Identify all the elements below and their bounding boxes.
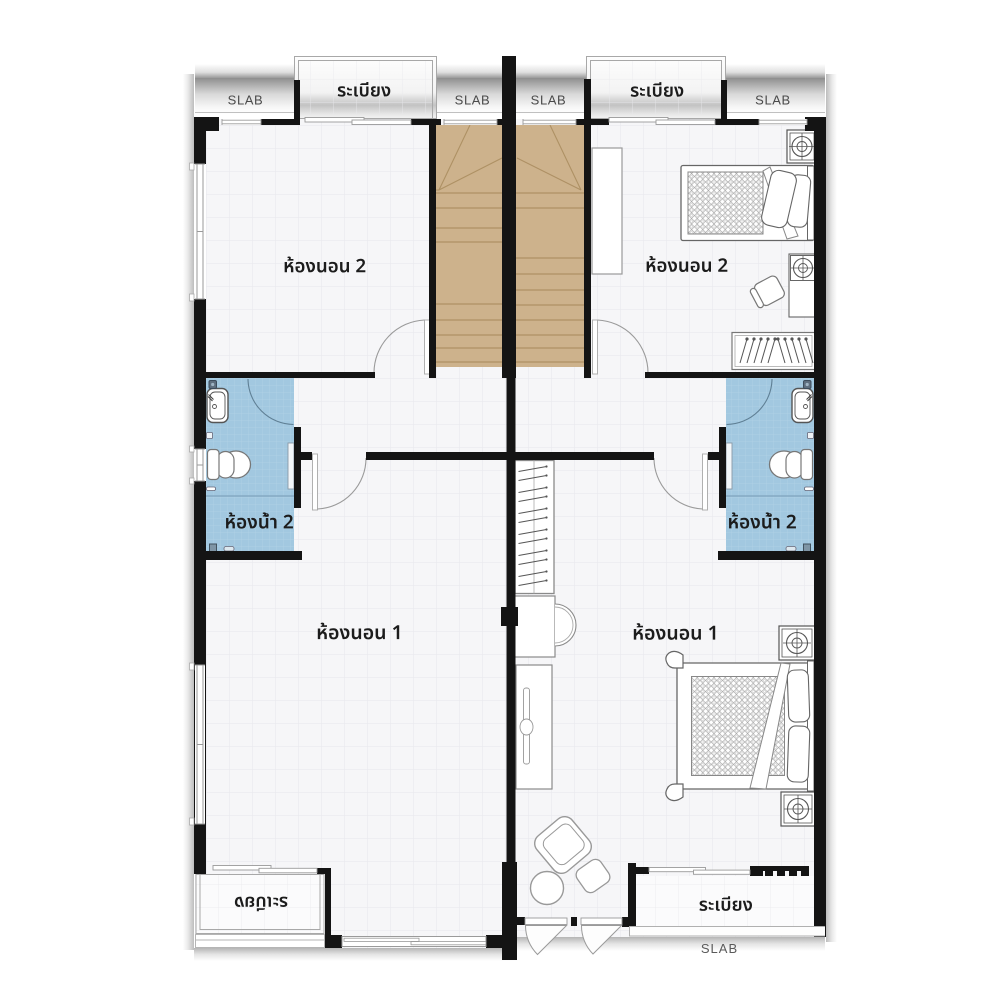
svg-text:SLAB: SLAB bbox=[228, 93, 264, 108]
svg-text:SLAB: SLAB bbox=[701, 941, 738, 956]
svg-text:SLAB: SLAB bbox=[531, 93, 567, 108]
svg-text:SLAB: SLAB bbox=[455, 93, 491, 108]
svg-text:SLAB: SLAB bbox=[755, 93, 791, 108]
